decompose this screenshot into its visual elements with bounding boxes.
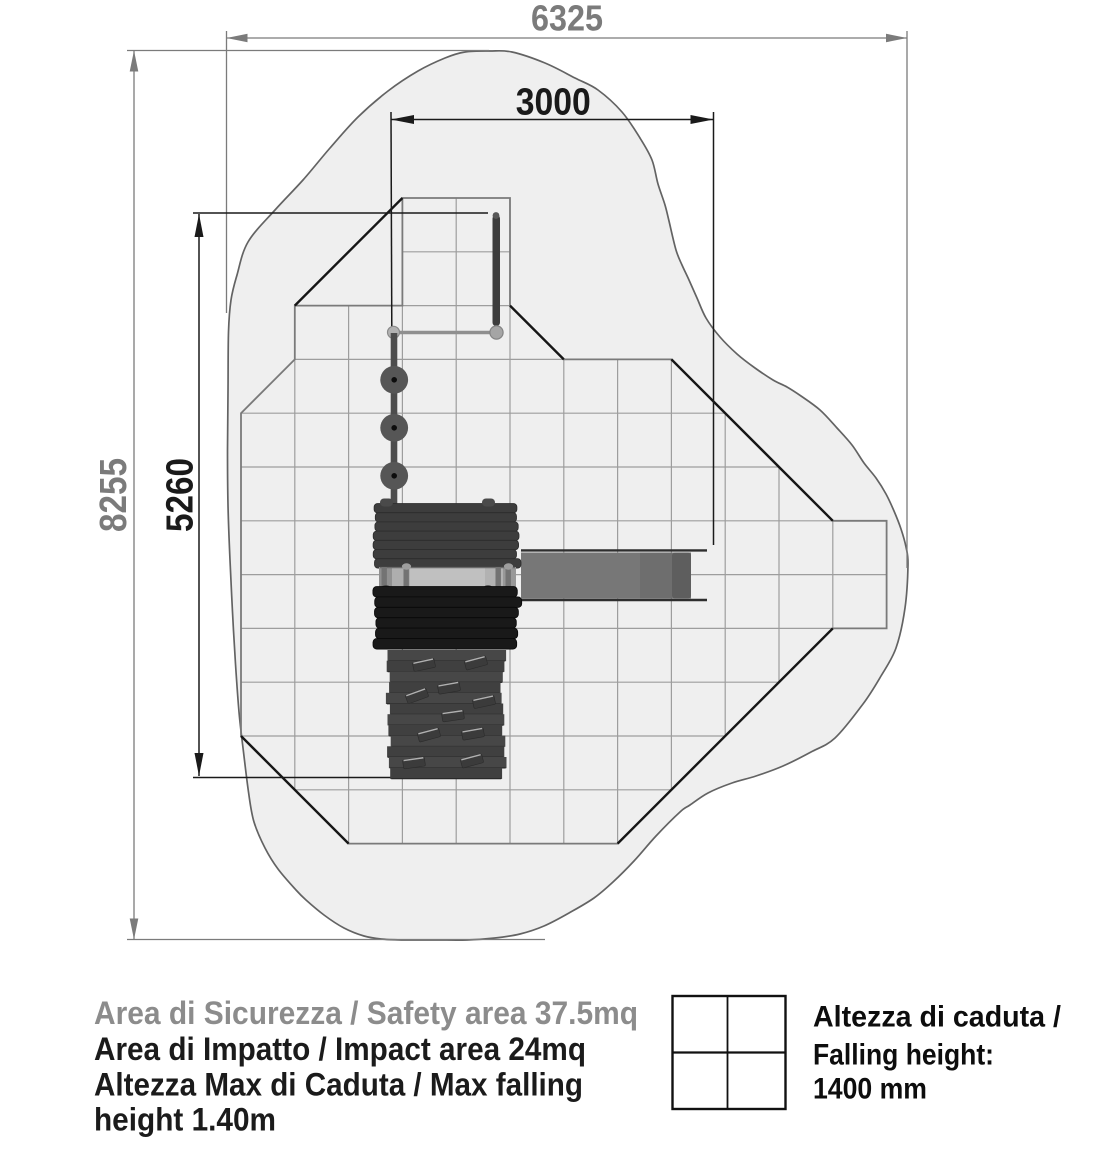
- svg-text:6325: 6325: [531, 0, 603, 39]
- svg-text:Altezza Max di Caduta / Max fa: Altezza Max di Caduta / Max falling: [94, 1067, 583, 1103]
- svg-text:Area di Impatto / Impact area: Area di Impatto / Impact area 24mq: [94, 1031, 586, 1067]
- svg-text:8255: 8255: [93, 458, 135, 532]
- svg-text:Area di Sicurezza / Safety are: Area di Sicurezza / Safety area 37.5mq: [94, 995, 638, 1031]
- svg-text:3000: 3000: [516, 82, 591, 124]
- svg-text:1400 mm: 1400 mm: [813, 1073, 927, 1106]
- svg-text:5260: 5260: [160, 458, 202, 532]
- svg-text:Altezza di caduta /: Altezza di caduta /: [813, 1001, 1062, 1034]
- svg-text:height 1.40m: height 1.40m: [94, 1102, 276, 1138]
- svg-text:Falling height:: Falling height:: [813, 1039, 994, 1072]
